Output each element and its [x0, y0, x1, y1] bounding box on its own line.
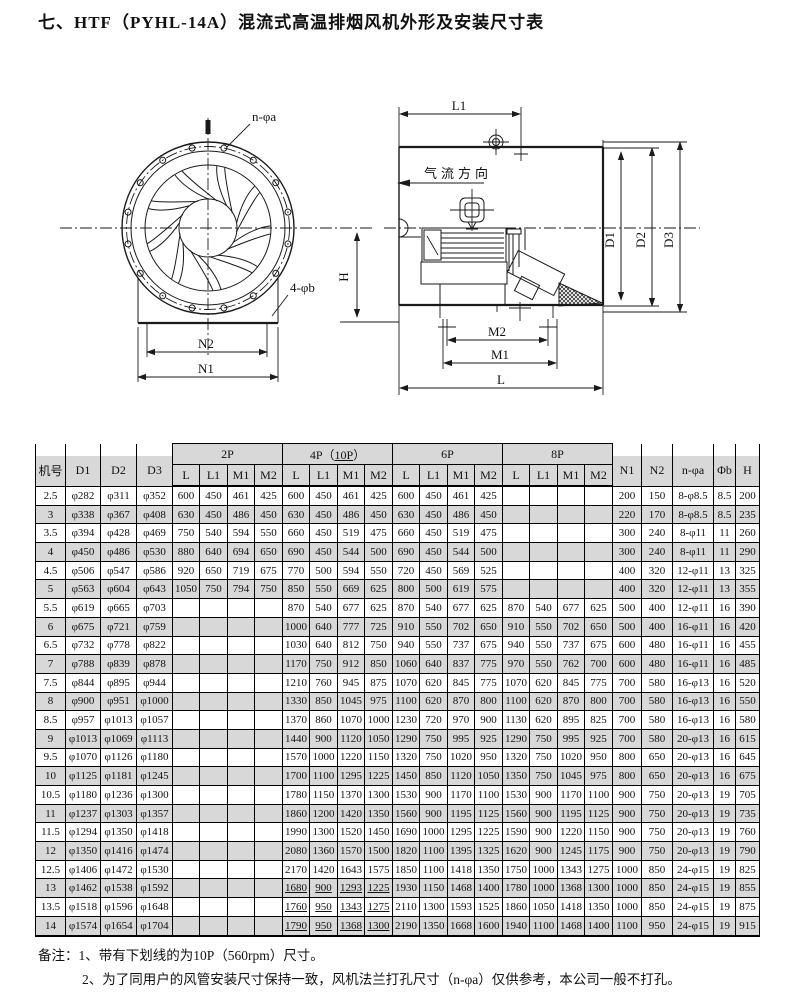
col-4p-m2: M2 [365, 465, 393, 487]
cell: 1000 [613, 860, 642, 879]
cell [255, 673, 283, 692]
cell [228, 673, 255, 692]
dim-label-n2: N2 [198, 336, 214, 351]
notes: 备注：1、带有下划线的为10P（560rpm）尺寸。 2、为了同用户的风管安装尺… [38, 944, 681, 992]
cell: 700 [613, 729, 642, 748]
cell: 150 [642, 486, 673, 505]
cell: 1575 [365, 860, 393, 879]
cell: 1170 [448, 786, 475, 805]
cell: 850 [642, 860, 673, 879]
cell: 16 [714, 599, 736, 618]
cell: 16 [714, 692, 736, 711]
cell: 20-φ13 [673, 786, 714, 805]
cell [255, 636, 283, 655]
cell: φ1000 [137, 692, 173, 711]
col-header-model: 机号 [36, 444, 66, 487]
cell: φ900 [66, 692, 101, 711]
cell: 762 [558, 655, 585, 674]
cell: 1210 [283, 673, 310, 692]
cell: 500 [475, 543, 503, 562]
cell: φ619 [66, 599, 101, 618]
cell: φ1013 [66, 729, 101, 748]
cell: 19 [714, 898, 736, 917]
cell [255, 860, 283, 879]
cell: 450 [310, 524, 338, 543]
cell: 8.5 [36, 711, 66, 730]
cell: 750 [420, 729, 448, 748]
cell: φ311 [101, 486, 137, 505]
table-row: 7.5φ844φ895φ9441210760945875107062084577… [36, 673, 760, 692]
cell: φ530 [137, 543, 173, 562]
cell: 1530 [393, 786, 420, 805]
cell: 425 [475, 486, 503, 505]
cell: 1418 [558, 898, 585, 917]
cell [228, 617, 255, 636]
cell: 1418 [448, 860, 475, 879]
cell: 1150 [420, 879, 448, 898]
cell: 13.5 [36, 898, 66, 917]
cell: 16-φ13 [673, 711, 714, 730]
cell: 450 [475, 505, 503, 524]
table-row: 5φ563φ604φ643105075079475085055066962580… [36, 580, 760, 599]
cell [255, 767, 283, 786]
cell: 11.5 [36, 823, 66, 842]
group-header-8p: 8P [503, 444, 613, 465]
cell [530, 505, 558, 524]
table-row: 3.5φ394φ428φ4697505405945506604505194756… [36, 524, 760, 543]
cell: 450 [420, 561, 448, 580]
note-2-text: 2、为了同用户的风管安装尺寸保持一致，风机法兰打孔尺寸（n-φa）仅供参考，本公… [82, 972, 681, 987]
cell: φ1350 [101, 823, 137, 842]
cell: 24-φ15 [673, 916, 714, 935]
cell: 1760 [283, 898, 310, 917]
cell: 925 [475, 729, 503, 748]
cell: 900 [613, 823, 642, 842]
cell: 520 [736, 673, 760, 692]
cell: 1570 [283, 748, 310, 767]
cell: 700 [585, 655, 613, 674]
cell: 750 [173, 524, 200, 543]
cell: 1195 [558, 804, 585, 823]
cell [255, 916, 283, 935]
cell [200, 767, 228, 786]
cell: 1643 [338, 860, 365, 879]
cell: 1668 [448, 916, 475, 935]
cell: 950 [642, 916, 673, 935]
col-header-d3: D3 [137, 444, 173, 487]
cell: 910 [393, 617, 420, 636]
table-row: 6.5φ732φ778φ8221030640812750940550737675… [36, 636, 760, 655]
cell [173, 711, 200, 730]
cell [530, 524, 558, 543]
cell [228, 823, 255, 842]
cell [200, 692, 228, 711]
cell: 1420 [338, 804, 365, 823]
cell: 1100 [310, 767, 338, 786]
cell: φ1013 [101, 711, 137, 730]
dim-label-m2: M2 [488, 324, 506, 339]
cell [255, 879, 283, 898]
col-2p-m2: M2 [255, 465, 283, 487]
cell: 450 [420, 505, 448, 524]
cell: 200 [613, 486, 642, 505]
cell: φ643 [137, 580, 173, 599]
cell: 519 [448, 524, 475, 543]
cell: 400 [613, 580, 642, 599]
cell: 594 [228, 524, 255, 543]
table-row: 10.5φ1180φ1236φ1300178011501370130015309… [36, 786, 760, 805]
col-2p-l1: L1 [200, 465, 228, 487]
cell [255, 842, 283, 861]
cell: φ957 [66, 711, 101, 730]
cell: 900 [530, 786, 558, 805]
cell: 14 [36, 916, 66, 935]
cell: 860 [310, 711, 338, 730]
col-2p-m1: M1 [228, 465, 255, 487]
cell: 1000 [310, 748, 338, 767]
cell: 1000 [283, 617, 310, 636]
cell: 750 [200, 580, 228, 599]
cell: 825 [736, 860, 760, 879]
cell: 900 [613, 804, 642, 823]
cell: 20-φ13 [673, 823, 714, 842]
cell: 1150 [310, 786, 338, 805]
cell: 1560 [503, 804, 530, 823]
cell [585, 524, 613, 543]
cell: 550 [530, 636, 558, 655]
cell: 650 [475, 617, 503, 636]
cell: 580 [642, 673, 673, 692]
cell: φ1236 [101, 786, 137, 805]
cell: 1368 [338, 916, 365, 935]
cell: 544 [338, 543, 365, 562]
cell [558, 543, 585, 562]
cell: 450 [255, 505, 283, 524]
cell: 1070 [393, 673, 420, 692]
cell: 450 [310, 543, 338, 562]
cell: 1150 [365, 748, 393, 767]
cell: 1050 [530, 898, 558, 917]
cell [173, 748, 200, 767]
table-row: 13φ1462φ1538φ159216809001293122519301150… [36, 879, 760, 898]
col-8p-l: L [503, 465, 530, 487]
cell: 900 [613, 842, 642, 861]
fan-front-view: N2 N1 n-φa 4-φb [60, 109, 374, 382]
cell: 675 [255, 561, 283, 580]
cell: 235 [736, 505, 760, 524]
cell: 550 [255, 524, 283, 543]
cell: 855 [736, 879, 760, 898]
cell: 850 [642, 898, 673, 917]
cell [173, 636, 200, 655]
cell: 725 [365, 617, 393, 636]
cell: 750 [310, 655, 338, 674]
cell [530, 486, 558, 505]
cell [173, 729, 200, 748]
cell [228, 748, 255, 767]
cell: 1050 [173, 580, 200, 599]
cell: 24-φ15 [673, 860, 714, 879]
cell: 325 [736, 561, 760, 580]
cell: 625 [365, 599, 393, 618]
cell: 1060 [393, 655, 420, 674]
inlet-cone [559, 283, 602, 306]
table-row: 8.5φ957φ1013φ105713708601070100012307209… [36, 711, 760, 730]
cell [255, 786, 283, 805]
cell: φ408 [137, 505, 173, 524]
cell [173, 804, 200, 823]
cell: 550 [420, 617, 448, 636]
cell: 1320 [393, 748, 420, 767]
cell: 200 [736, 486, 760, 505]
cell: φ1574 [66, 916, 101, 935]
cell [530, 543, 558, 562]
cell [558, 486, 585, 505]
cell: 777 [338, 617, 365, 636]
cell: φ1126 [101, 748, 137, 767]
cell: 600 [173, 486, 200, 505]
cell: φ338 [66, 505, 101, 524]
cell: 1220 [558, 823, 585, 842]
cell: 737 [448, 636, 475, 655]
cell: φ1357 [137, 804, 173, 823]
cell: 485 [736, 655, 760, 674]
cell: 550 [365, 561, 393, 580]
cell [200, 729, 228, 748]
cell: 1070 [338, 711, 365, 730]
cell: 1330 [283, 692, 310, 711]
cell: 1045 [338, 692, 365, 711]
table-row: 6φ675φ721φ759100064077772591055070265091… [36, 617, 760, 636]
cell: 850 [310, 692, 338, 711]
cell [228, 599, 255, 618]
cell: 790 [736, 842, 760, 861]
cell: 640 [420, 655, 448, 674]
cell: 240 [642, 524, 673, 543]
cell: 1300 [365, 786, 393, 805]
cell: φ367 [101, 505, 137, 524]
cell: 12-φ11 [673, 599, 714, 618]
cell: 875 [736, 898, 760, 917]
cell: 300 [613, 524, 642, 543]
cell: 1820 [393, 842, 420, 861]
cell: 300 [613, 543, 642, 562]
cell: φ1406 [66, 860, 101, 879]
cell: 1045 [558, 767, 585, 786]
cell: φ1592 [137, 879, 173, 898]
cell [228, 842, 255, 861]
cell: 794 [228, 580, 255, 599]
cell: φ1472 [101, 860, 137, 879]
cell: 1468 [558, 916, 585, 935]
cell: 640 [200, 543, 228, 562]
cell: φ759 [137, 617, 173, 636]
cell: 3 [36, 505, 66, 524]
cell: 650 [642, 748, 673, 767]
col-header-n2: N2 [642, 444, 673, 487]
cell: 950 [585, 748, 613, 767]
cell: φ1518 [66, 898, 101, 917]
cell: φ282 [66, 486, 101, 505]
cell: φ1125 [66, 767, 101, 786]
cell: 1225 [475, 823, 503, 842]
cell: 1300 [310, 823, 338, 842]
cell: 16-φ13 [673, 673, 714, 692]
cell: 450 [365, 505, 393, 524]
cell: 1100 [393, 692, 420, 711]
cell: 950 [310, 898, 338, 917]
cell: φ1418 [137, 823, 173, 842]
cell: 750 [642, 823, 673, 842]
cell: φ1474 [137, 842, 173, 861]
cell: 800 [613, 748, 642, 767]
cell: 800 [393, 580, 420, 599]
cell: 1195 [448, 804, 475, 823]
cell: 1300 [585, 879, 613, 898]
cell: 620 [530, 673, 558, 692]
cell: 1620 [503, 842, 530, 861]
cell: 8-φ11 [673, 543, 714, 562]
callout-bolt-holes: n-φa [227, 109, 276, 147]
cell [255, 823, 283, 842]
cell [200, 898, 228, 917]
cell: 1150 [585, 823, 613, 842]
cell: 1170 [283, 655, 310, 674]
cell: 650 [642, 767, 673, 786]
dim-label-m1: M1 [491, 347, 509, 362]
cell: 16 [714, 617, 736, 636]
cell: 720 [420, 711, 448, 730]
cell: 19 [714, 786, 736, 805]
cell: 620 [530, 692, 558, 711]
cell: 700 [613, 673, 642, 692]
cell [200, 748, 228, 767]
cell: 550 [420, 636, 448, 655]
cell: 550 [736, 692, 760, 711]
cell: 550 [310, 580, 338, 599]
cell: 600 [283, 486, 310, 505]
table-row: 5.5φ619φ665φ7038705406776258705406776258… [36, 599, 760, 618]
table-row: 9.5φ1070φ1126φ11801570100012201150132075… [36, 748, 760, 767]
cell: 950 [310, 916, 338, 935]
cell: 800 [585, 692, 613, 711]
dimension-table: 机号 D1 D2 D3 2P 4P（10P） 6P 8P N1 N2 n-φa … [35, 443, 760, 937]
cell: 13 [36, 879, 66, 898]
cell: 995 [448, 729, 475, 748]
document-page: 七、HTF（PYHL-14A）混流式高温排烟风机外形及安装尺寸表 [0, 0, 800, 1004]
col-header-bolt-pattern: n-φa [673, 444, 714, 487]
cell: 1120 [448, 767, 475, 786]
guide-vane [507, 251, 564, 300]
cell: 500 [310, 561, 338, 580]
cell: 575 [475, 580, 503, 599]
col-6p-m1: M1 [448, 465, 475, 487]
cell: 1275 [585, 860, 613, 879]
cell: 1530 [503, 786, 530, 805]
cell: 12.5 [36, 860, 66, 879]
cell: 750 [530, 729, 558, 748]
cell: 19 [714, 860, 736, 879]
cell: 2190 [393, 916, 420, 935]
cell: 870 [558, 692, 585, 711]
cell: 620 [420, 692, 448, 711]
cell: 500 [613, 617, 642, 636]
cell: 594 [338, 561, 365, 580]
cell: 450 [420, 543, 448, 562]
cell: φ1180 [66, 786, 101, 805]
cell [173, 692, 200, 711]
technical-drawing: N2 N1 n-φa 4-φb [0, 85, 800, 435]
cell: 461 [448, 486, 475, 505]
cell: 1100 [585, 786, 613, 805]
cell: 1850 [393, 860, 420, 879]
cell [200, 655, 228, 674]
cell: 1370 [338, 786, 365, 805]
cell: 690 [393, 543, 420, 562]
cell: 1100 [503, 692, 530, 711]
col-6p-m2: M2 [475, 465, 503, 487]
cell: 775 [585, 673, 613, 692]
cell [585, 543, 613, 562]
cell: 13 [714, 561, 736, 580]
table-row: 12.5φ1406φ1472φ1530217014201643157518501… [36, 860, 760, 879]
cell: 4.5 [36, 561, 66, 580]
dim-label-d1: D1 [602, 232, 617, 248]
cell: φ703 [137, 599, 173, 618]
cell: 1750 [503, 860, 530, 879]
cell: 620 [530, 711, 558, 730]
cell: 1600 [475, 916, 503, 935]
cell: 660 [283, 524, 310, 543]
cell [200, 804, 228, 823]
cell: 1350 [475, 860, 503, 879]
cell: 1930 [393, 879, 420, 898]
col-header-d2: D2 [101, 444, 137, 487]
cell: 1860 [503, 898, 530, 917]
cell: φ1245 [137, 767, 173, 786]
cell: 1100 [530, 916, 558, 935]
cell: φ839 [101, 655, 137, 674]
cell: 600 [613, 636, 642, 655]
cell: 1000 [420, 823, 448, 842]
cell: 1420 [310, 860, 338, 879]
cell: φ778 [101, 636, 137, 655]
cell: 750 [420, 748, 448, 767]
cell: 677 [338, 599, 365, 618]
cell: 5 [36, 580, 66, 599]
cell: 1350 [420, 916, 448, 935]
cell [503, 524, 530, 543]
cell: φ1181 [101, 767, 137, 786]
cell: 20-φ13 [673, 804, 714, 823]
cell: 735 [736, 804, 760, 823]
cell: 900 [530, 823, 558, 842]
cell [173, 617, 200, 636]
cell: 900 [310, 729, 338, 748]
dimension-n2: N2 [147, 323, 267, 357]
cell: 400 [613, 561, 642, 580]
cell [558, 580, 585, 599]
cell: 660 [393, 524, 420, 543]
cell: 16 [714, 729, 736, 748]
cell: φ844 [66, 673, 101, 692]
note-1-text: 1、带有下划线的为10P（560rpm）尺寸。 [79, 948, 324, 963]
cell: φ1654 [101, 916, 137, 935]
cell [558, 561, 585, 580]
dim-label-n1: N1 [198, 361, 214, 376]
cell: 900 [310, 879, 338, 898]
cell: 645 [736, 748, 760, 767]
